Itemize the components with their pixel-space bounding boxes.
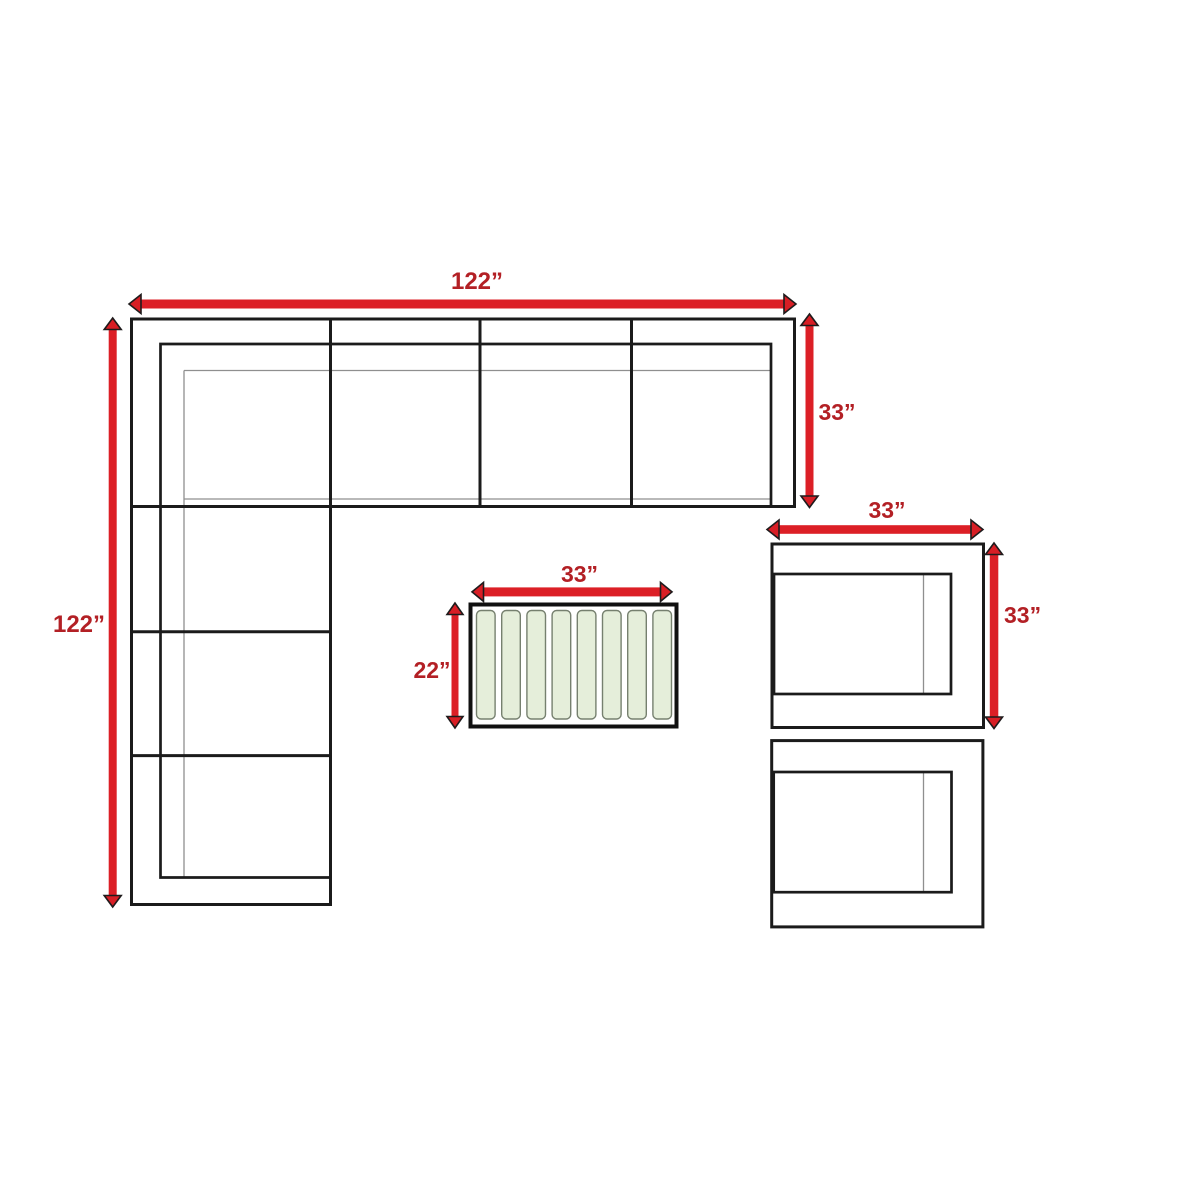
svg-text:22”: 22” — [413, 657, 450, 683]
svg-text:33”: 33” — [561, 561, 598, 587]
svg-text:33”: 33” — [1004, 602, 1041, 628]
svg-text:33”: 33” — [818, 399, 855, 425]
svg-text:122”: 122” — [53, 611, 105, 638]
svg-text:122”: 122” — [451, 268, 503, 295]
svg-text:33”: 33” — [868, 497, 905, 523]
